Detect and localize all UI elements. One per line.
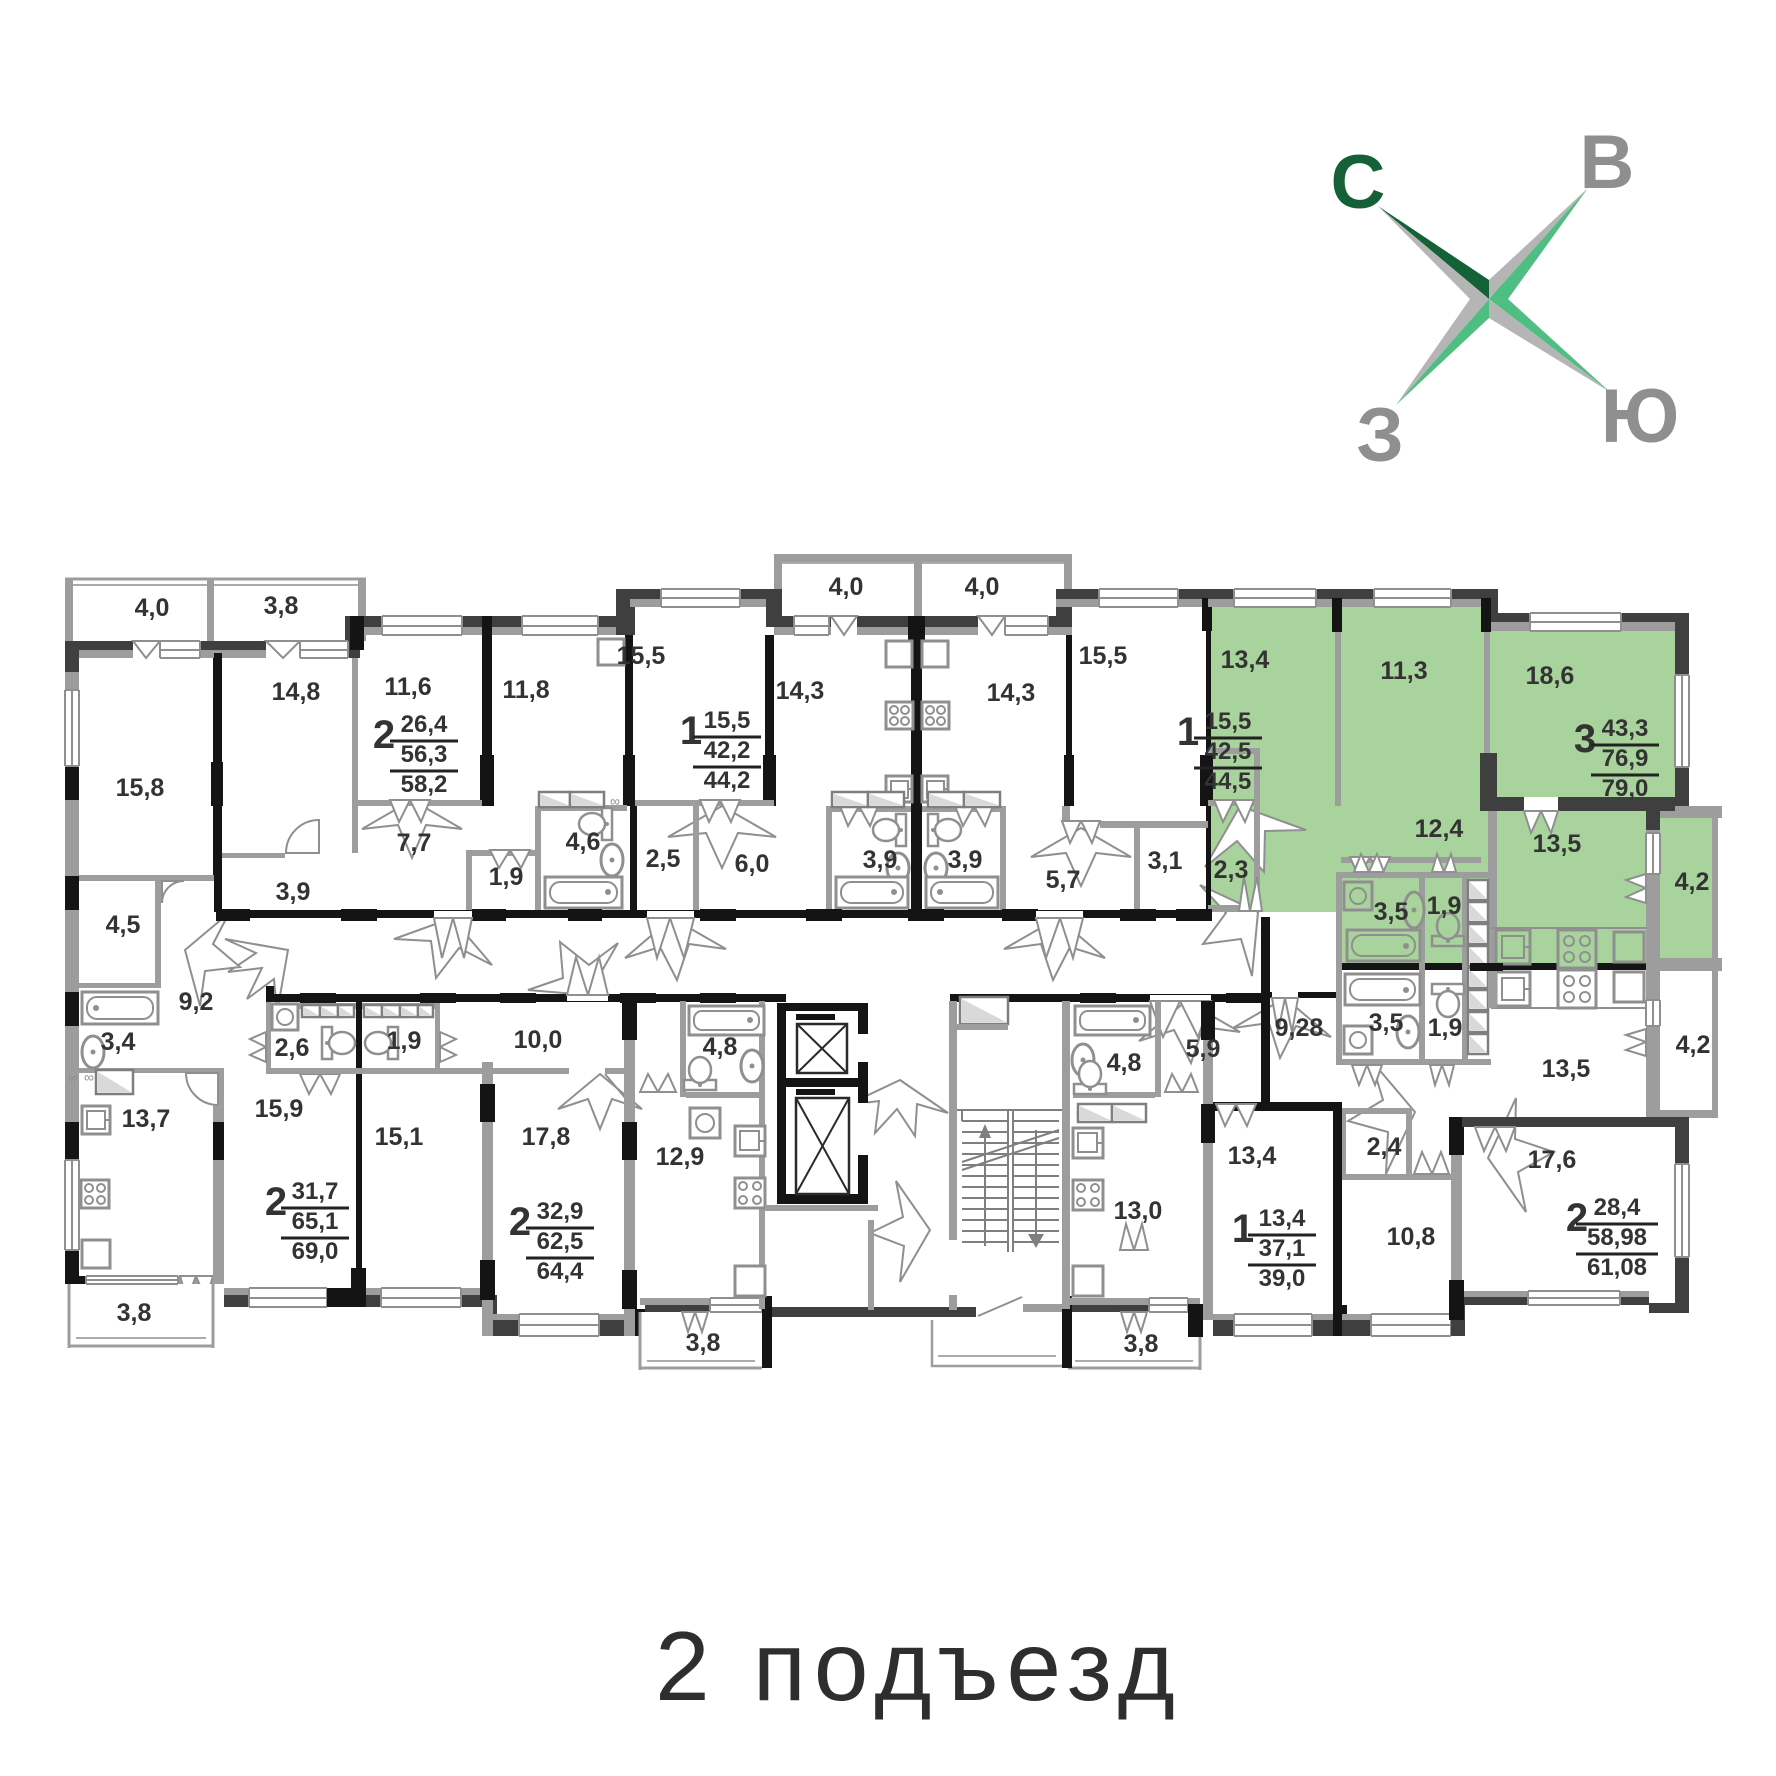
svg-text:2,3: 2,3 (1214, 856, 1249, 884)
svg-text:3,4: 3,4 (101, 1028, 136, 1056)
svg-text:2,5: 2,5 (646, 845, 681, 873)
svg-text:58,98: 58,98 (1587, 1224, 1647, 1251)
svg-text:56,3: 56,3 (401, 741, 448, 768)
svg-text:43,3: 43,3 (1602, 715, 1649, 742)
svg-text:28,4: 28,4 (1594, 1194, 1641, 1221)
svg-text:61,08: 61,08 (1587, 1254, 1647, 1281)
svg-text:1,9: 1,9 (489, 863, 524, 891)
svg-text:76,9: 76,9 (1602, 745, 1649, 772)
svg-text:62,5: 62,5 (537, 1228, 584, 1255)
svg-text:9,2: 9,2 (179, 988, 214, 1016)
svg-text:32,9: 32,9 (537, 1198, 584, 1225)
svg-text:15,5: 15,5 (1079, 642, 1128, 670)
svg-text:69,0: 69,0 (292, 1238, 339, 1265)
svg-text:5,7: 5,7 (1046, 866, 1081, 894)
svg-text:65,1: 65,1 (292, 1208, 339, 1235)
svg-text:42,5: 42,5 (1205, 738, 1252, 765)
svg-text:13,4: 13,4 (1259, 1205, 1306, 1232)
svg-text:10,8: 10,8 (1387, 1223, 1436, 1251)
svg-text:15,5: 15,5 (617, 642, 666, 670)
svg-text:26,4: 26,4 (401, 711, 448, 738)
svg-text:39,0: 39,0 (1259, 1265, 1306, 1292)
svg-text:10,0: 10,0 (514, 1026, 563, 1054)
svg-text:79,0: 79,0 (1602, 775, 1649, 802)
svg-text:1,9: 1,9 (1428, 1014, 1463, 1042)
svg-text:2: 2 (1566, 1196, 1588, 1240)
svg-text:С: С (1331, 140, 1386, 225)
svg-text:13,5: 13,5 (1542, 1055, 1591, 1083)
svg-text:З: З (1356, 393, 1404, 478)
svg-text:2: 2 (265, 1180, 287, 1224)
svg-text:7,7: 7,7 (397, 829, 432, 857)
svg-text:14,3: 14,3 (776, 677, 825, 705)
svg-text:4,0: 4,0 (829, 573, 864, 601)
svg-text:14,3: 14,3 (987, 679, 1036, 707)
svg-text:4,2: 4,2 (1676, 1031, 1711, 1059)
svg-text:11,3: 11,3 (1380, 657, 1427, 685)
svg-text:4,0: 4,0 (965, 573, 1000, 601)
svg-text:3,9: 3,9 (948, 846, 983, 874)
svg-text:1: 1 (680, 709, 702, 753)
svg-text:64,4: 64,4 (537, 1258, 584, 1285)
svg-text:4,5: 4,5 (106, 911, 141, 939)
svg-text:3,8: 3,8 (1124, 1330, 1159, 1358)
svg-text:13,0: 13,0 (1114, 1197, 1163, 1225)
svg-text:3,8: 3,8 (264, 592, 299, 620)
svg-text:13,4: 13,4 (1228, 1142, 1277, 1170)
svg-text:∞: ∞ (610, 793, 620, 809)
svg-text:17,6: 17,6 (1528, 1146, 1577, 1174)
svg-text:3,1: 3,1 (1148, 847, 1183, 875)
svg-text:1: 1 (1177, 710, 1199, 754)
svg-text:3,9: 3,9 (276, 878, 311, 906)
svg-text:11,6: 11,6 (384, 673, 431, 701)
svg-text:3,5: 3,5 (1369, 1009, 1404, 1037)
svg-text:15,9: 15,9 (255, 1095, 304, 1123)
svg-text:Ю: Ю (1601, 374, 1679, 459)
svg-text:17,8: 17,8 (522, 1123, 571, 1151)
svg-text:5,9: 5,9 (1186, 1035, 1221, 1063)
svg-text:11,8: 11,8 (502, 676, 549, 704)
svg-text:4,2: 4,2 (1675, 868, 1710, 896)
svg-text:9,28: 9,28 (1275, 1014, 1324, 1042)
svg-text:15,8: 15,8 (116, 774, 165, 802)
svg-text:2,4: 2,4 (1367, 1133, 1402, 1161)
svg-text:18,6: 18,6 (1526, 662, 1575, 690)
svg-text:4,8: 4,8 (1107, 1049, 1142, 1077)
svg-text:В: В (1580, 120, 1635, 205)
svg-text:31,7: 31,7 (292, 1178, 339, 1205)
svg-text:3,5: 3,5 (1374, 898, 1409, 926)
svg-text:1,9: 1,9 (1427, 892, 1462, 920)
svg-text:6,0: 6,0 (735, 850, 770, 878)
svg-text:14,8: 14,8 (272, 678, 321, 706)
svg-text:∞: ∞ (84, 1069, 94, 1085)
svg-text:1: 1 (1232, 1207, 1254, 1251)
svg-text:4,0: 4,0 (135, 594, 170, 622)
svg-text:58,2: 58,2 (401, 771, 448, 798)
svg-text:13,5: 13,5 (1533, 830, 1582, 858)
svg-text:4,8: 4,8 (703, 1033, 738, 1061)
svg-text:15,5: 15,5 (1205, 708, 1252, 735)
svg-text:2,6: 2,6 (275, 1034, 310, 1062)
svg-text:2: 2 (509, 1200, 531, 1244)
svg-text:12,4: 12,4 (1415, 815, 1464, 843)
svg-text:37,1: 37,1 (1259, 1235, 1306, 1262)
svg-text:13,4: 13,4 (1221, 646, 1270, 674)
svg-text:1,9: 1,9 (387, 1027, 422, 1055)
svg-text:42,2: 42,2 (704, 737, 751, 764)
svg-text:3,8: 3,8 (117, 1299, 152, 1327)
svg-text:44,5: 44,5 (1205, 768, 1252, 795)
svg-text:4,6: 4,6 (566, 828, 601, 856)
svg-text:∞: ∞ (68, 1070, 77, 1085)
svg-text:12,9: 12,9 (656, 1143, 705, 1171)
svg-text:2 подъезд: 2 подъезд (655, 1611, 1183, 1721)
svg-text:13,7: 13,7 (122, 1105, 171, 1133)
svg-text:2: 2 (373, 713, 395, 757)
svg-text:3,8: 3,8 (686, 1329, 721, 1357)
svg-text:15,5: 15,5 (704, 707, 751, 734)
svg-text:44,2: 44,2 (704, 767, 751, 794)
svg-text:15,1: 15,1 (375, 1123, 424, 1151)
svg-text:3: 3 (1574, 717, 1596, 761)
svg-text:3,9: 3,9 (863, 846, 898, 874)
